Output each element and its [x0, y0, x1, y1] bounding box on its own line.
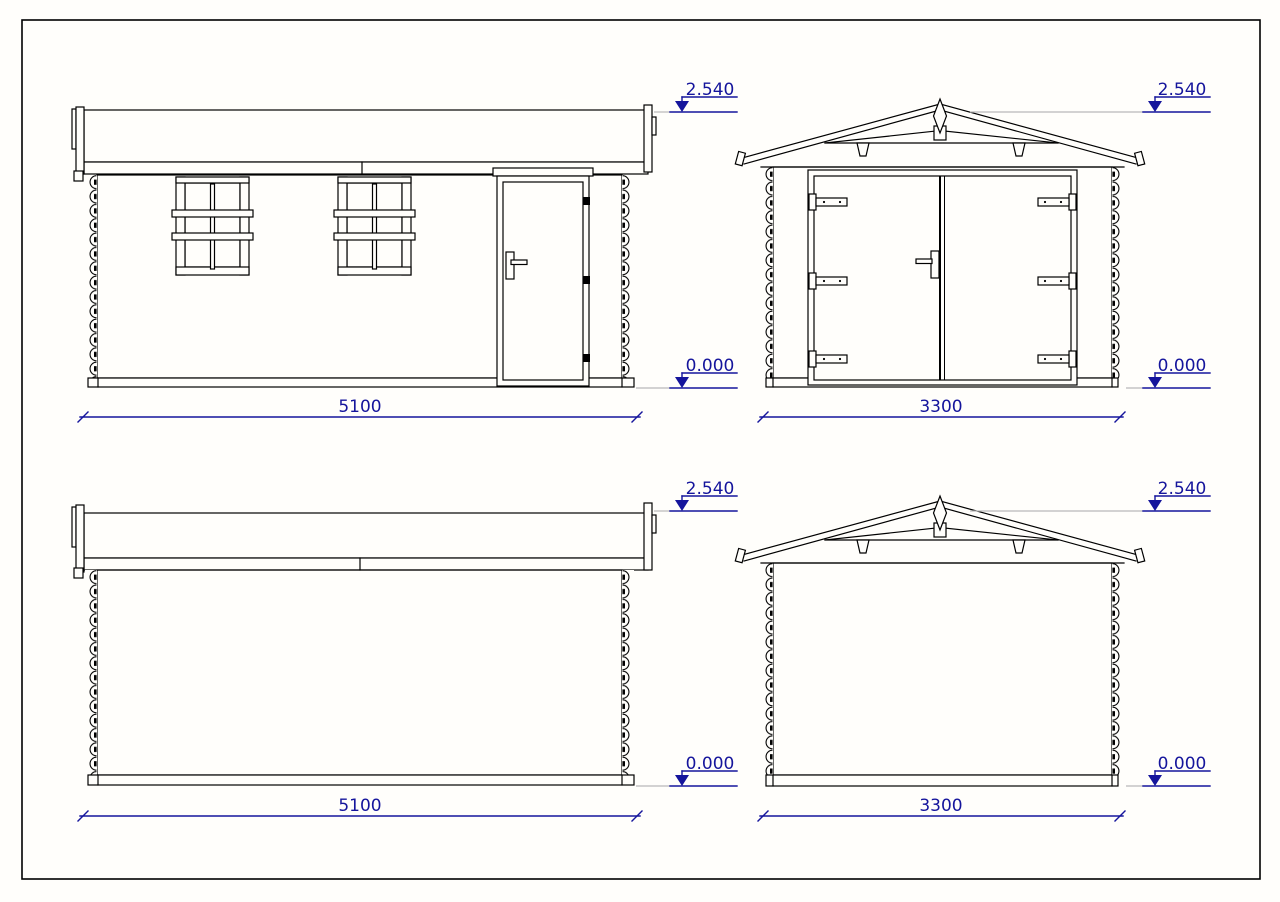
garage-lock-plate [931, 251, 939, 278]
garage-door [808, 170, 1077, 385]
window-mullion [373, 184, 377, 269]
elevation-drawing: 2.540 0.000 5100 [0, 0, 1280, 902]
log-wall [85, 570, 634, 785]
bargeboard-left [76, 107, 84, 174]
log-ends-right [1112, 563, 1124, 775]
log-ends-left [85, 175, 97, 378]
garage-handle [916, 259, 932, 264]
width-dimension: 3300 [758, 397, 1125, 422]
door-handle [511, 260, 527, 265]
view-side-elevation-a: 2.540 0.000 5100 [72, 80, 737, 422]
bargeboard-left [76, 505, 84, 572]
level-label: 0.000 [686, 356, 735, 376]
level-label: 0.000 [1158, 356, 1207, 376]
level-label: 0.000 [1158, 754, 1207, 774]
width-dimension: 3300 [758, 796, 1125, 821]
door-hinge [583, 197, 590, 205]
window [334, 177, 415, 275]
window [172, 177, 253, 275]
dimension-label: 5100 [338, 796, 381, 816]
purlin-bracket [857, 143, 869, 156]
gable-roof [735, 99, 1144, 166]
log-ends-left [761, 167, 773, 378]
roof [72, 503, 656, 578]
foundation-beam [88, 775, 634, 785]
door-hinge [583, 354, 590, 362]
log-ends-left [761, 563, 773, 775]
purlin-bracket [1013, 540, 1025, 553]
dimension-label: 3300 [919, 397, 962, 417]
garage-door-frame [808, 170, 1077, 385]
door-hinge [583, 276, 590, 284]
view-side-elevation-b: 2.540 0.000 5100 [72, 479, 737, 821]
purlin-bracket [857, 540, 869, 553]
window-mullion [211, 184, 215, 269]
drawing-sheet: 2.540 0.000 5100 [0, 0, 1280, 902]
bargeboard-right [644, 105, 652, 172]
width-dimension: 5100 [78, 796, 642, 821]
level-label: 0.000 [686, 754, 735, 774]
door-header [493, 168, 593, 176]
log-wall [761, 563, 1124, 786]
view-front-elevation: 2.540 0.000 3300 [735, 80, 1210, 422]
level-label: 2.540 [1158, 80, 1207, 100]
purlin-bracket [1013, 143, 1025, 156]
level-label: 2.540 [1158, 479, 1207, 499]
gable-roof [735, 496, 1144, 563]
entry-door [493, 168, 593, 386]
width-dimension: 5100 [78, 397, 642, 422]
bargeboard-right [644, 503, 652, 570]
view-rear-elevation: 2.540 0.000 3300 [735, 479, 1210, 821]
dimension-label: 3300 [919, 796, 962, 816]
dimension-label: 5100 [338, 397, 381, 417]
sheet-border [22, 20, 1260, 879]
level-label: 2.540 [686, 479, 735, 499]
log-ends-left [85, 570, 97, 775]
level-label: 2.540 [686, 80, 735, 100]
foundation-beam [766, 775, 1118, 786]
log-ends-right [1112, 167, 1124, 378]
door-lock-plate [506, 252, 514, 279]
log-ends-right [622, 175, 634, 378]
door-frame [497, 176, 589, 386]
log-ends-right [622, 570, 634, 775]
